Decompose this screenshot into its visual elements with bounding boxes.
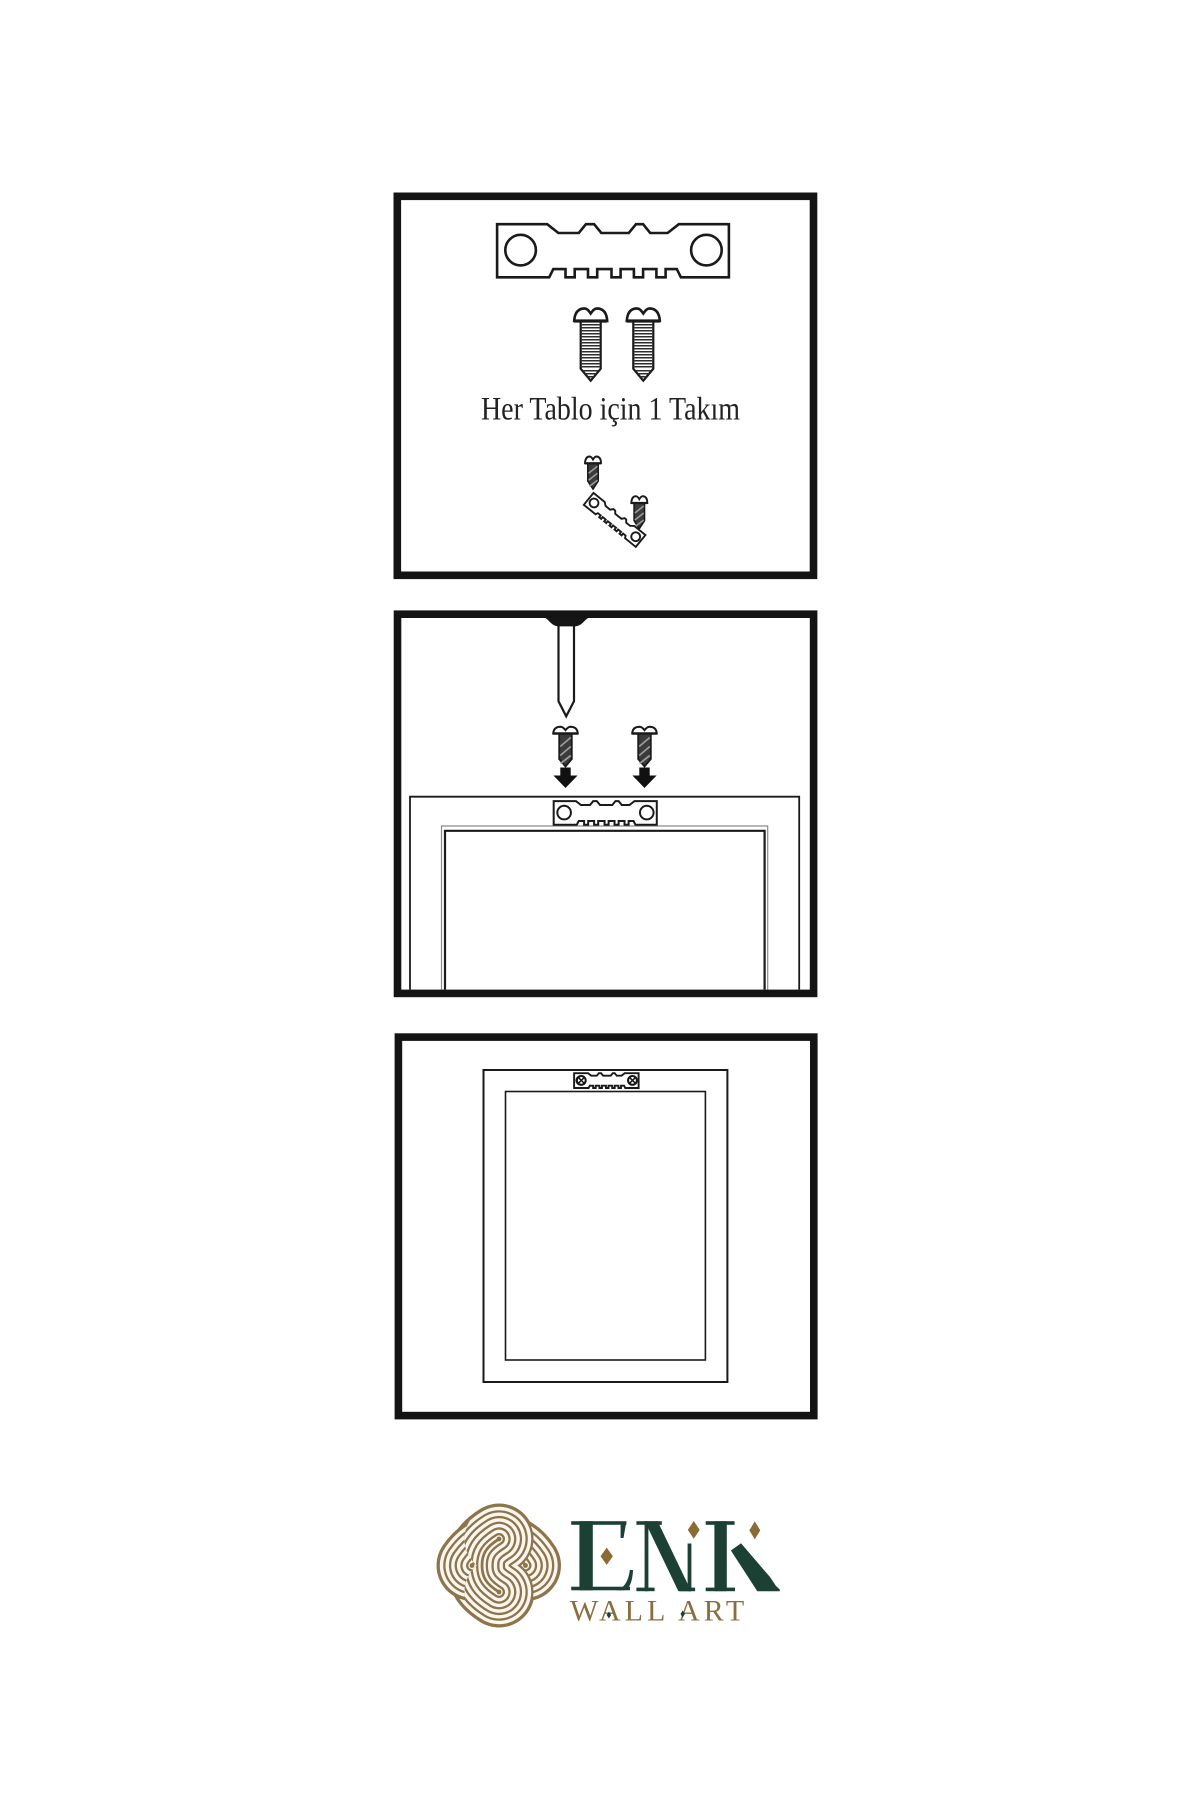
svg-text:Her Tablo için 1 Takım: Her Tablo için 1 Takım: [481, 392, 740, 428]
svg-text:WALL ART: WALL ART: [570, 1595, 748, 1628]
